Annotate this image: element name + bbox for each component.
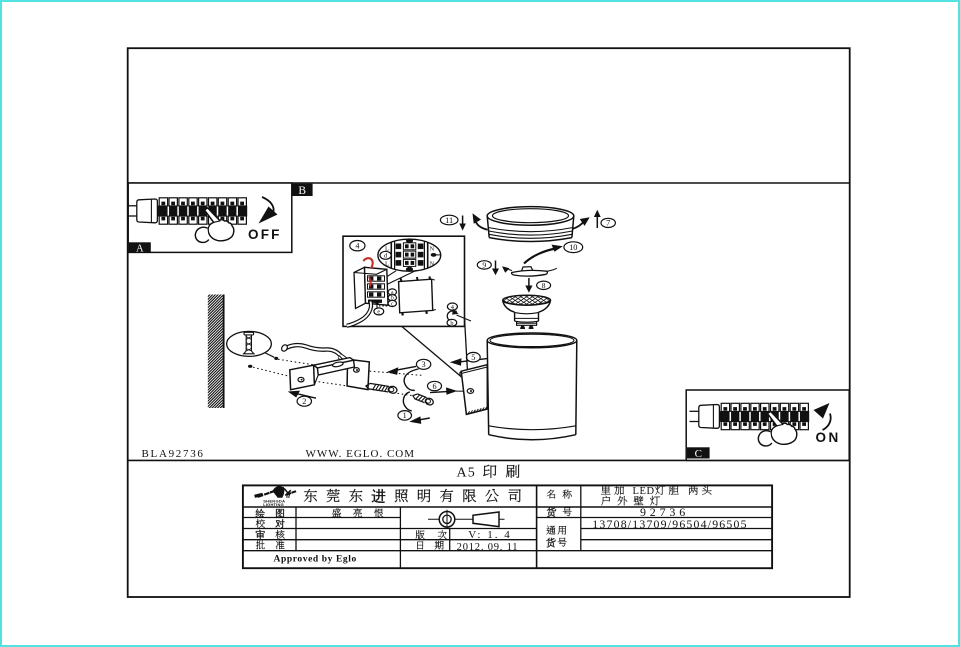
svg-text:2012. 09. 11: 2012. 09. 11 xyxy=(457,542,519,553)
svg-text:1: 1 xyxy=(403,411,407,420)
svg-text:11: 11 xyxy=(445,216,453,225)
svg-text:N: N xyxy=(430,261,435,268)
svg-text:A: A xyxy=(136,243,144,254)
svg-text:10: 10 xyxy=(569,243,577,252)
svg-text:ON: ON xyxy=(816,430,841,445)
svg-text:LIGHTING: LIGHTING xyxy=(263,502,284,507)
svg-text:2: 2 xyxy=(302,397,306,406)
svg-text:e: e xyxy=(377,309,380,316)
svg-text:6: 6 xyxy=(432,382,436,391)
svg-text:9: 9 xyxy=(482,261,486,270)
svg-text:3: 3 xyxy=(422,360,426,369)
svg-text:W: W xyxy=(286,494,291,499)
svg-text:Approved by Eglo: Approved by Eglo xyxy=(274,555,357,565)
svg-text:5: 5 xyxy=(471,353,475,362)
svg-text:WWW. EGLO. COM: WWW. EGLO. COM xyxy=(306,448,416,460)
svg-text:V: 1. 4: V: 1. 4 xyxy=(468,529,511,541)
svg-text:B: B xyxy=(298,185,306,197)
svg-text:8: 8 xyxy=(542,281,546,290)
svg-text:7: 7 xyxy=(606,219,610,228)
svg-text:OFF: OFF xyxy=(248,227,282,242)
svg-text:13708/13709/96504/96505: 13708/13709/96504/96505 xyxy=(592,517,747,531)
svg-text:c: c xyxy=(391,301,394,307)
svg-text:L: L xyxy=(385,261,389,268)
svg-text:4: 4 xyxy=(355,242,359,251)
svg-text:C: C xyxy=(695,448,702,460)
svg-text:b: b xyxy=(450,320,453,327)
svg-text:LED: LED xyxy=(633,486,655,497)
svg-text:BLA92736: BLA92736 xyxy=(142,448,205,460)
svg-text:A5: A5 xyxy=(457,466,477,481)
svg-text:N: N xyxy=(430,246,435,253)
